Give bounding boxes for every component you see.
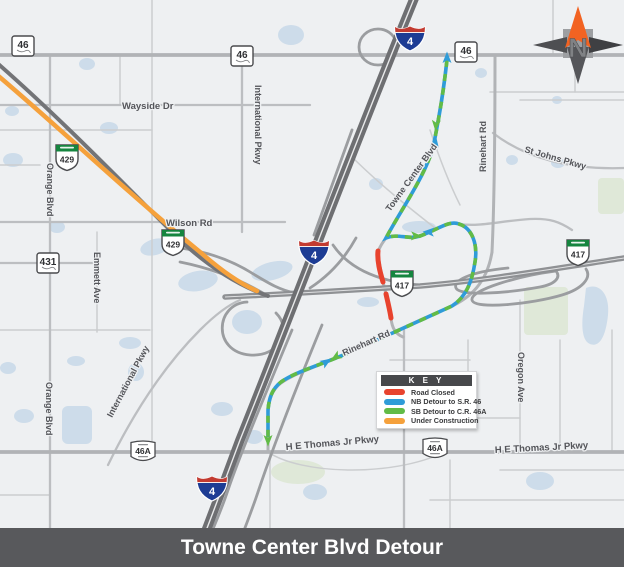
sr417-toll-shield: 417 [391,271,413,297]
key-row-under-construction: Under Construction [384,417,476,424]
oregon-ave-label: Oregon Ave [516,352,526,402]
cr46a-shield: 46A [423,438,447,458]
wilson-rd-label: Wilson Rd [166,218,213,229]
orange-blvd-bottom-label: Orange Blvd [44,382,54,436]
international-pkwy-top-label: International Pkwy [253,85,263,165]
orange-blvd-top-label: Orange Blvd [45,163,55,217]
svg-text:429: 429 [60,155,74,165]
under-construction-label: Under Construction [411,416,478,425]
svg-text:4: 4 [407,36,414,48]
svg-text:4: 4 [209,486,216,498]
sr417-toll-shield: 417 [567,240,589,266]
emmett-ave-label: Emmett Ave [92,252,102,303]
detour-map-page: 46 46 46 431 429 429 417 417 4 [0,0,624,567]
road-closed-swatch [384,389,405,395]
title-bar: Towne Center Blvd Detour [0,528,624,567]
key-header: K E Y [381,375,472,386]
sr431-shield: 431 [37,253,59,273]
svg-text:46: 46 [17,40,29,51]
key-row-road-closed: Road Closed [384,389,476,396]
svg-text:46A: 46A [427,443,443,453]
key-row-sb-detour: SB Detour to C.R. 46A [384,408,476,415]
nb-detour-label: NB Detour to S.R. 46 [411,397,481,406]
sb-detour-label: SB Detour to C.R. 46A [411,407,486,416]
compass-n-letter: N [568,33,588,63]
sb-detour-swatch [384,408,405,414]
sr46-shield: 46 [231,46,253,66]
wayside-dr-label: Wayside Dr [122,101,174,112]
road-closed-label: Road Closed [411,388,455,397]
sr429-toll-shield: 429 [162,230,184,256]
map-title: Towne Center Blvd Detour [181,536,443,560]
under-construction-swatch [384,418,405,424]
svg-text:429: 429 [166,240,180,250]
svg-text:46: 46 [460,46,472,57]
svg-text:431: 431 [40,257,57,268]
map-key: K E Y Road Closed NB Detour to S.R. 46 S… [376,371,477,429]
svg-text:417: 417 [571,250,585,260]
sr46-shield: 46 [455,42,477,62]
map-canvas: 46 46 46 431 429 429 417 417 4 [0,0,624,528]
svg-text:417: 417 [395,281,409,291]
rinehart-rd-top-label: Rinehart Rd [478,121,488,172]
sr46-shield: 46 [12,36,34,56]
key-row-nb-detour: NB Detour to S.R. 46 [384,398,476,405]
svg-text:46A: 46A [135,446,151,456]
nb-detour-swatch [384,399,405,405]
svg-text:46: 46 [236,50,248,61]
map: 46 46 46 431 429 429 417 417 4 [0,0,624,528]
cr46a-shield: 46A [131,441,155,461]
sr429-toll-shield: 429 [56,145,78,171]
svg-text:4: 4 [311,250,318,262]
